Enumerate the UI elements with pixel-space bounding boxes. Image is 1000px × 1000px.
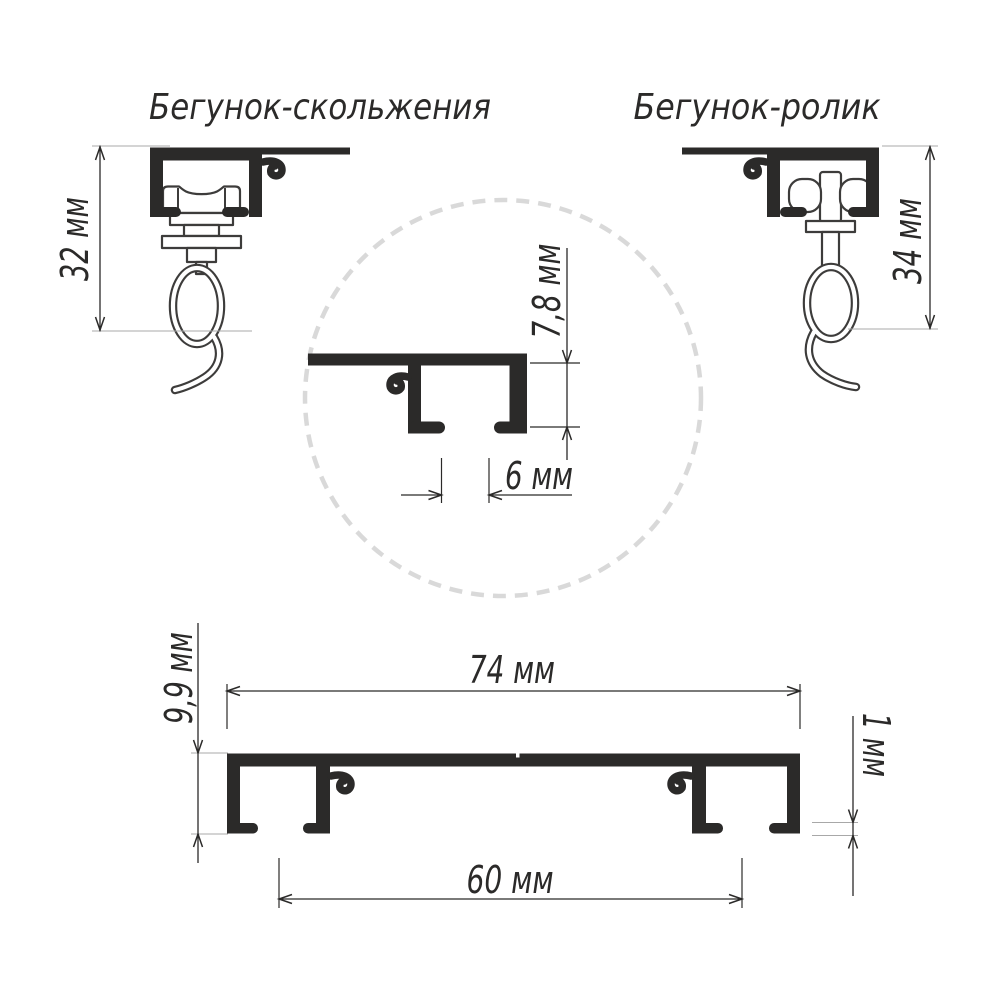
dim-label-6mm: 6 мм	[505, 454, 573, 498]
curtain-hook	[173, 268, 221, 390]
dim-label-60mm: 60 мм	[467, 858, 554, 902]
rail-clip-hook	[390, 376, 408, 391]
right-runner-title: Бегунок-ролик	[634, 87, 881, 128]
slider-glider	[162, 187, 241, 391]
dim-label-34mm: 34 мм	[886, 198, 930, 284]
dim-label-32mm: 32 мм	[53, 197, 97, 281]
right-runner-drawing	[682, 148, 879, 388]
rail-clip-hook	[671, 775, 691, 791]
profile-break-mark	[516, 754, 520, 758]
dim-label-9-9mm: 9,9 мм	[157, 632, 201, 724]
channel-detail-profile	[308, 354, 527, 434]
rail-clip-hook	[747, 161, 766, 176]
dim-label-1mm: 1 мм	[854, 713, 898, 777]
left-runner-title: Бегунок-скольжения	[149, 87, 491, 128]
rail-clip-hook	[331, 775, 351, 791]
curtain-hook	[807, 267, 856, 387]
zoom-detail-circle	[305, 200, 701, 596]
full-profile-cross-section	[227, 754, 800, 834]
curtain-rail-technical-diagram: Бегунок-скольжения Бегунок-ролик 32 мм 3…	[0, 0, 1000, 1000]
technical-drawing: Бегунок-скольжения Бегунок-ролик 32 мм 3…	[0, 0, 1000, 1000]
dimension-1mm	[812, 716, 858, 896]
roller-runner	[789, 172, 872, 387]
rail-clip-hook	[263, 161, 282, 176]
dim-label-7-8mm: 7,8 мм	[525, 244, 569, 339]
dim-label-74mm: 74 мм	[469, 648, 555, 692]
